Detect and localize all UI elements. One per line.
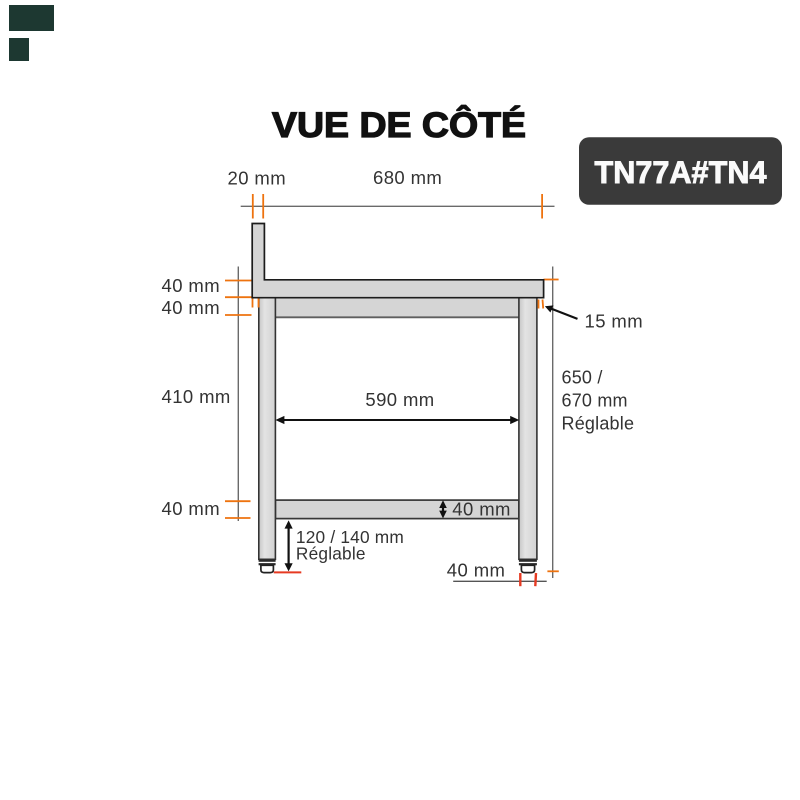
svg-text:590 mm: 590 mm <box>365 389 434 410</box>
svg-text:40 mm: 40 mm <box>452 499 511 520</box>
svg-text:40 mm: 40 mm <box>162 498 221 519</box>
svg-text:40 mm: 40 mm <box>162 275 221 296</box>
svg-text:650 /: 650 / <box>562 368 603 388</box>
svg-text:VUE DE CÔTÉ: VUE DE CÔTÉ <box>272 105 526 145</box>
svg-text:15 mm: 15 mm <box>585 311 644 332</box>
svg-text:40 mm: 40 mm <box>447 559 506 580</box>
svg-text:680 mm: 680 mm <box>373 167 442 188</box>
svg-text:Réglable: Réglable <box>296 544 366 564</box>
svg-text:410 mm: 410 mm <box>162 386 231 407</box>
svg-text:Réglable: Réglable <box>562 414 635 434</box>
svg-text:20 mm: 20 mm <box>228 168 287 189</box>
svg-text:TN77A#TN4: TN77A#TN4 <box>595 154 767 190</box>
svg-text:670 mm: 670 mm <box>562 391 628 411</box>
svg-text:40 mm: 40 mm <box>162 297 221 318</box>
